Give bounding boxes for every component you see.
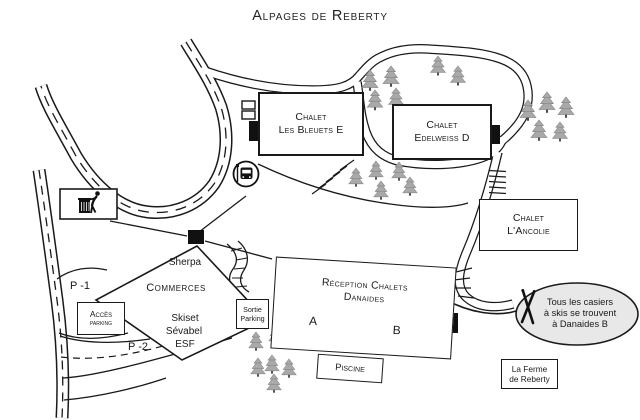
sortie-line2: Parking xyxy=(240,314,264,323)
sortie-line1: Sortie xyxy=(243,305,262,314)
ferme-line2: de Reberty xyxy=(509,374,550,384)
sortie-parking-box: Sortie Parking xyxy=(236,299,269,329)
reception-wing-b: B xyxy=(392,323,401,338)
parking-level-2-label: P -2 xyxy=(128,341,148,353)
reception-danaides-box: Réception Chalets Danaides A B xyxy=(270,257,456,360)
map-title: Alpages de Reberty xyxy=(0,8,640,24)
bleuets-outbuildings xyxy=(242,101,255,119)
note-line2: à skis se trouvent xyxy=(535,308,625,319)
piscine-box: Piscine xyxy=(316,354,384,384)
bus-stop-icon xyxy=(234,162,259,187)
ferme-reberty-box: La Ferme de Reberty xyxy=(501,359,558,389)
trash-icon xyxy=(60,189,117,219)
acces-line1: Accès xyxy=(90,309,112,320)
chalet-bleuets-name: Chalet xyxy=(295,111,326,124)
chalet-ancolie-name: Chalet xyxy=(513,212,544,225)
chalet-bleuets-box: Chalet Les Bleuets E xyxy=(258,92,364,156)
acces-line2: parking xyxy=(90,320,112,328)
commerces-banner-label: Sherpa xyxy=(150,257,220,268)
chalet-ancolie-sub: L'Ancolie xyxy=(507,225,550,238)
reception-line2: Danaides xyxy=(343,291,384,307)
parking-level-1-label: P -1 xyxy=(70,280,90,292)
note-line3: à Danaides B xyxy=(535,319,625,330)
commerces-shop-sevabel: Sévabel xyxy=(149,326,219,337)
reception-wing-a: A xyxy=(309,314,318,329)
commerces-shop-skiset: Skiset xyxy=(150,313,220,324)
chalet-edelweiss-box: Chalet Edelweiss D xyxy=(392,104,492,160)
commerces-title-label: Commerces xyxy=(116,282,236,294)
chalet-bleuets-sub: Les Bleuets E xyxy=(279,124,344,137)
ferme-line1: La Ferme xyxy=(512,364,548,374)
note-line1: Tous les casiers xyxy=(535,297,625,308)
piscine-label: Piscine xyxy=(335,362,365,376)
chalet-edelweiss-sub: Edelweiss D xyxy=(414,132,469,145)
resort-map: Alpages de Reberty Chalet Les Bleuets E … xyxy=(0,0,640,420)
ski-lockers-note: Tous les casiers à skis se trouvent à Da… xyxy=(535,297,625,330)
commerces-shop-esf: ESF xyxy=(150,339,220,350)
chalet-ancolie-box: Chalet L'Ancolie xyxy=(479,199,578,251)
acces-parking-box: Accès parking xyxy=(77,302,125,335)
chalet-edelweiss-name: Chalet xyxy=(426,119,457,132)
